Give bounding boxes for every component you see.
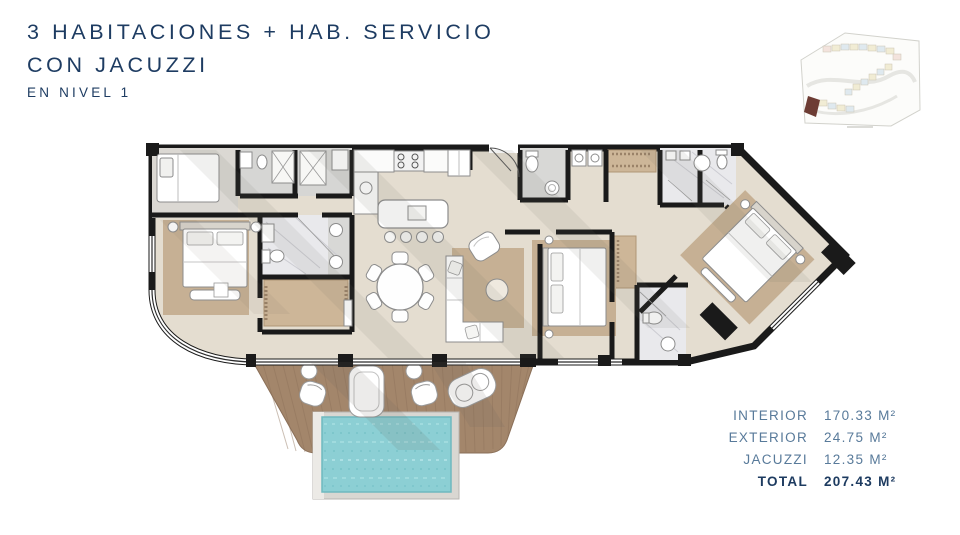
area-label: INTERIOR <box>729 408 808 423</box>
area-value: 207.43 M² <box>824 474 916 489</box>
area-label: JACUZZI <box>729 452 808 467</box>
area-value: 24.75 M² <box>824 430 916 445</box>
dining-table <box>377 264 423 310</box>
area-label: EXTERIOR <box>729 430 808 445</box>
area-label: TOTAL <box>729 474 808 489</box>
area-value: 170.33 M² <box>824 408 916 423</box>
stove <box>394 151 424 171</box>
area-summary: INTERIOR 170.33 M² EXTERIOR 24.75 M² JAC… <box>729 408 916 489</box>
area-value: 12.35 M² <box>824 452 916 467</box>
